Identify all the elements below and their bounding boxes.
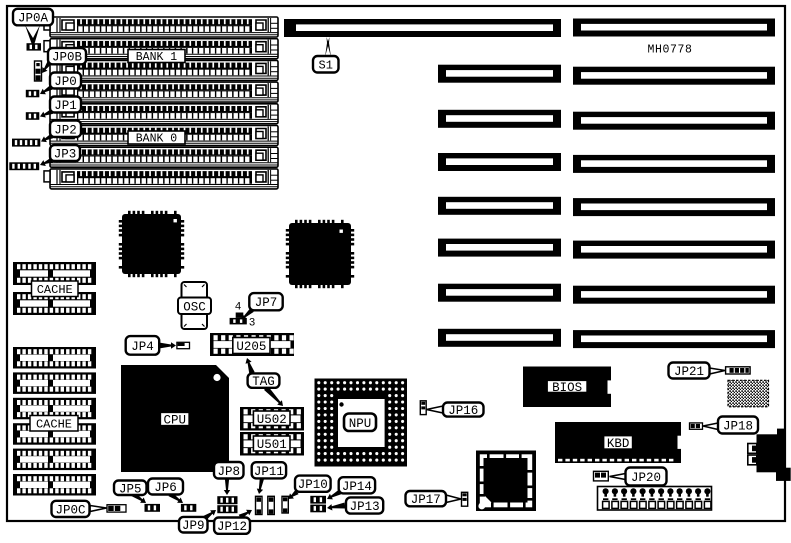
svg-text:BANK 0: BANK 0: [136, 133, 178, 146]
svg-text:JP0: JP0: [54, 75, 77, 89]
svg-text:BANK 1: BANK 1: [136, 51, 178, 64]
svg-text:JP17: JP17: [411, 493, 441, 507]
svg-text:JP4: JP4: [131, 340, 154, 354]
svg-text:CACHE: CACHE: [36, 418, 72, 432]
svg-text:JP6: JP6: [154, 481, 177, 495]
svg-text:JP7: JP7: [255, 296, 278, 310]
svg-text:U501: U501: [257, 438, 287, 452]
svg-text:CACHE: CACHE: [37, 283, 73, 297]
svg-text:JP21: JP21: [674, 365, 704, 379]
svg-text:TAG: TAG: [252, 375, 275, 389]
svg-text:U502: U502: [257, 413, 287, 427]
svg-text:JP3: JP3: [54, 148, 77, 162]
svg-text:JP0A: JP0A: [18, 12, 49, 26]
svg-text:4: 4: [235, 302, 242, 314]
svg-text:JP8: JP8: [217, 465, 240, 479]
svg-text:JP11: JP11: [254, 465, 284, 479]
svg-text:JP9: JP9: [182, 519, 205, 533]
svg-text:JP14: JP14: [342, 480, 372, 494]
svg-text:JP18: JP18: [723, 420, 753, 434]
svg-text:JP10: JP10: [298, 478, 328, 492]
svg-text:JP13: JP13: [350, 500, 380, 514]
svg-text:JP2: JP2: [54, 123, 77, 137]
svg-text:JP5: JP5: [119, 482, 142, 496]
svg-text:JP0B: JP0B: [52, 51, 83, 65]
svg-text:JP0C: JP0C: [55, 503, 85, 517]
svg-text:S1: S1: [319, 59, 333, 73]
svg-text:MH0778: MH0778: [647, 44, 692, 57]
svg-text:BIOS: BIOS: [552, 381, 582, 395]
svg-text:JP20: JP20: [631, 471, 661, 485]
svg-text:KBD: KBD: [607, 437, 630, 451]
svg-text:JP12: JP12: [217, 520, 247, 534]
svg-text:OSC: OSC: [183, 301, 206, 315]
svg-text:3: 3: [249, 318, 256, 330]
svg-text:U205: U205: [236, 340, 266, 354]
svg-text:NPU: NPU: [349, 417, 372, 431]
svg-text:JP1: JP1: [54, 99, 77, 113]
svg-text:CPU: CPU: [163, 414, 186, 428]
svg-text:JP16: JP16: [448, 404, 478, 418]
